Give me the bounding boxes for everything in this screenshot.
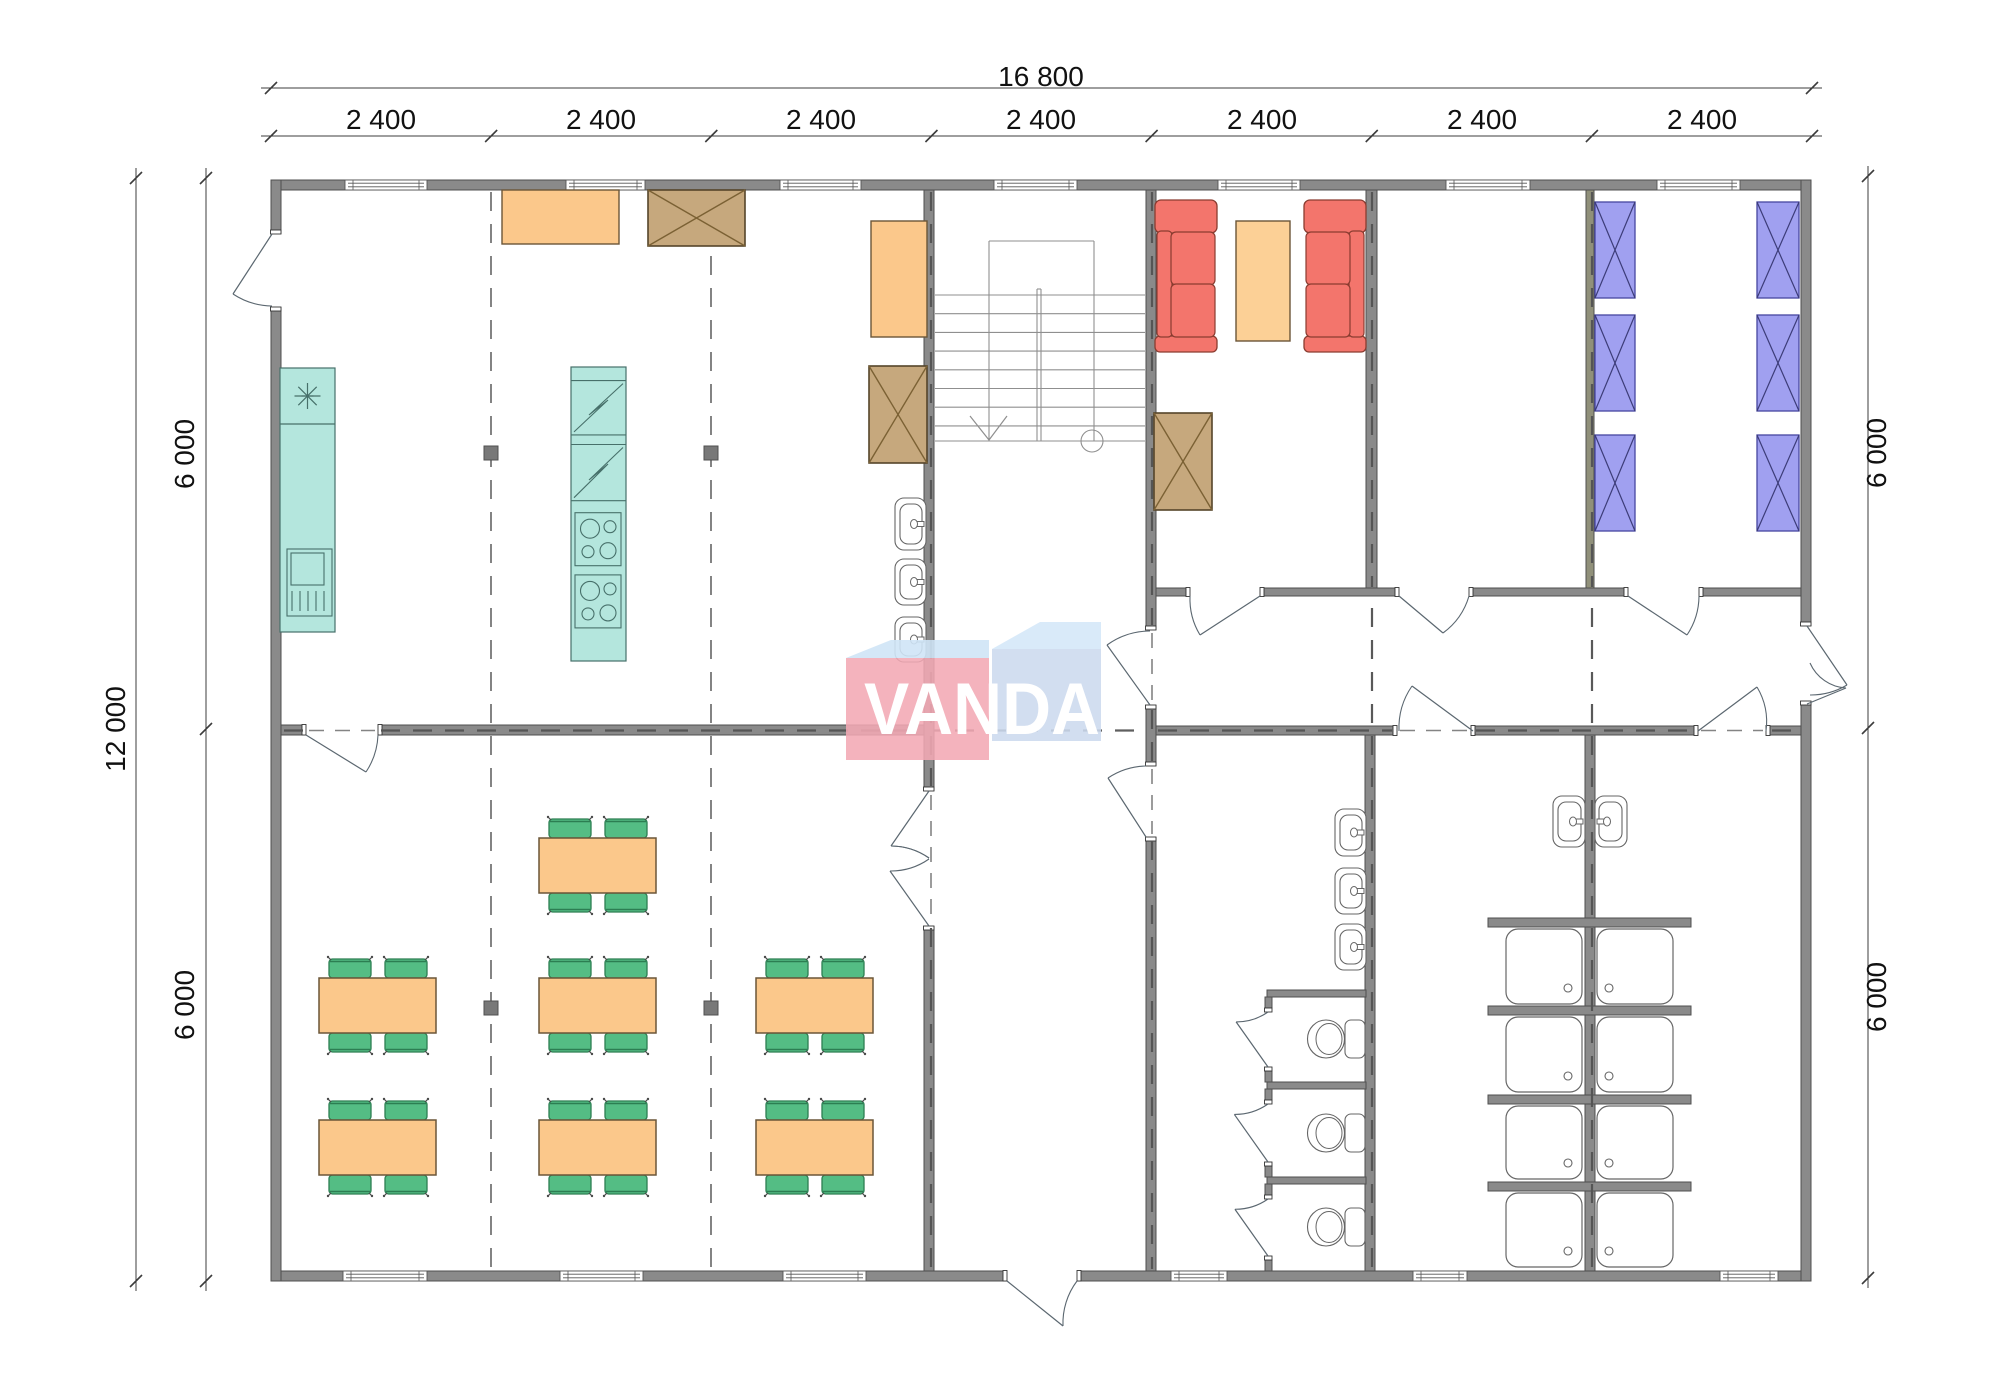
svg-text:6 000: 6 000 [1861,962,1892,1032]
svg-text:6 000: 6 000 [169,970,200,1040]
svg-text:2 400: 2 400 [1006,104,1076,135]
svg-text:2 400: 2 400 [1227,104,1297,135]
svg-text:16 800: 16 800 [998,61,1084,92]
svg-text:2 400: 2 400 [786,104,856,135]
svg-text:6 000: 6 000 [169,419,200,489]
svg-text:2 400: 2 400 [1447,104,1517,135]
svg-text:12 000: 12 000 [100,686,131,772]
svg-text:6 000: 6 000 [1861,418,1892,488]
svg-text:2 400: 2 400 [346,104,416,135]
svg-text:2 400: 2 400 [566,104,636,135]
svg-text:2 400: 2 400 [1667,104,1737,135]
svg-text:VANDA: VANDA [864,669,1100,750]
